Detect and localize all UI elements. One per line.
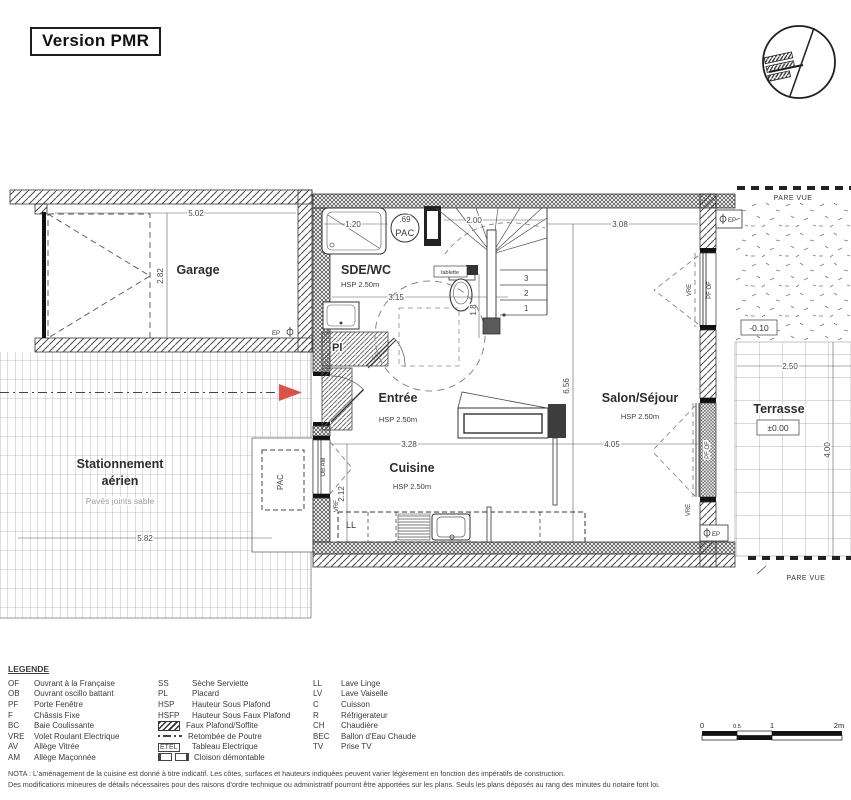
step-2: 2 xyxy=(524,289,529,298)
window-pf-of-top-label: PF OF xyxy=(707,281,713,299)
ep-box-bottom-right: EP xyxy=(700,525,728,541)
legend-label: Ballon d'Eau Chaude xyxy=(341,732,416,741)
dim-garage-height: 2.82 xyxy=(156,268,165,284)
salon-hsp: HSP 2.50m xyxy=(621,412,659,421)
dim-salon-top: 3.08 xyxy=(612,220,628,229)
dim-salon-width: 4.05 xyxy=(604,440,620,449)
legend-label: Tableau Electrique xyxy=(192,742,258,751)
terrasse-label: Terrasse xyxy=(753,402,804,416)
stair-rail xyxy=(487,230,496,318)
tablette-shelf: tablette xyxy=(434,266,467,277)
stair-newel xyxy=(483,318,500,334)
legend-abbr: AV xyxy=(8,742,34,751)
sdewc-hsp: HSP 2.50m xyxy=(341,280,379,289)
legend-abbr: R xyxy=(313,711,341,720)
legend-label: Ouvrant oscillo battant xyxy=(34,689,114,698)
window-ob-am-label: OB AM xyxy=(321,457,327,476)
scale-2m: 2m xyxy=(834,721,844,730)
dim-cuisine-height: 2.12 xyxy=(337,486,346,502)
stationnement-area: PAC Stationnement aérien Pavés joints sa… xyxy=(0,352,313,618)
dim-garage-width: 5.02 xyxy=(188,209,204,218)
legend-label: Retombée de Poutre xyxy=(188,732,262,741)
scale-05: 0.5 xyxy=(733,724,741,730)
legend-abbr: TV xyxy=(313,742,341,751)
legend-abbr: LV xyxy=(313,689,341,698)
entree-hsp: HSP 2.50m xyxy=(379,415,417,424)
legend-label: Hauteur Sous Plafond xyxy=(192,700,270,709)
legend-col1: OFOuvrant à la Française OBOuvrant oscil… xyxy=(8,678,119,763)
garage-door xyxy=(42,212,46,338)
dim-wc: 1.8 xyxy=(469,304,478,316)
legend-col3: LLLave Linge LVLave Vaiselle CCuisson RR… xyxy=(313,678,416,752)
scale-1: 1 xyxy=(770,721,774,730)
legend-label: Prise TV xyxy=(341,742,372,751)
level-path: -0.10 xyxy=(741,320,777,335)
page-title: Version PMR xyxy=(30,27,161,56)
legend-abbr: OB xyxy=(8,689,34,698)
sdewc-label: SDE/WC xyxy=(341,263,391,277)
stationnement-label-1: Stationnement xyxy=(77,457,165,471)
legend-label: Hauteur Sous Faux Plafond xyxy=(192,711,290,720)
nota-line-2: Des modifications mineures de détails né… xyxy=(8,779,848,790)
floor-plan-page: Version PMR xyxy=(0,0,851,800)
scale-0: 0 xyxy=(700,721,704,730)
legend-abbr: SS xyxy=(158,679,192,688)
legend-abbr: OF xyxy=(8,679,34,688)
legend-label: Sèche Serviette xyxy=(192,679,248,688)
legend-abbr: C xyxy=(313,700,341,709)
dim-5-82: 5.82 xyxy=(137,534,153,543)
pare-vue-top-label: PARE VUE xyxy=(774,195,813,202)
level-path-label: -0.10 xyxy=(749,323,769,333)
legend-label: Ouvrant à la Française xyxy=(34,679,115,688)
garage: 5.02 2.82 Garage EP xyxy=(10,190,312,352)
step-1: 1 xyxy=(524,304,529,313)
stationnement-label-2: aérien xyxy=(102,474,139,488)
legend-abbr: F xyxy=(8,711,34,720)
window-pf-of-bottom-label: PF OF xyxy=(705,441,711,459)
dim-terrasse-height: 4.00 xyxy=(823,442,832,458)
window-vre-bottom-label: VRE xyxy=(686,504,692,516)
legend-abbr: PL xyxy=(158,689,192,698)
legend-label: Cloison démontable xyxy=(194,753,265,762)
legend-abbr: HSFP xyxy=(158,711,192,720)
cuisine-label: Cuisine xyxy=(389,461,434,475)
ep-bottom-right-label: EP xyxy=(712,532,720,538)
north-arrow-icon xyxy=(757,20,841,104)
stationnement-surface: Pavés joints sable xyxy=(86,496,155,506)
legend-abbr: VRE xyxy=(8,732,34,741)
dim-sdewc-width: 3.15 xyxy=(388,293,404,302)
legend-label: Lave Linge xyxy=(341,679,380,688)
dim-stairs: 2.00 xyxy=(466,216,482,225)
cuisine-hsp: HSP 2.50m xyxy=(393,482,431,491)
legend-label: Placard xyxy=(192,689,219,698)
towel-unit xyxy=(424,206,441,246)
legend-abbr: PF xyxy=(8,700,34,709)
legend-abbr: HSP xyxy=(158,700,192,709)
level-terrasse: ±0.00 xyxy=(757,420,799,435)
step-3: 3 xyxy=(524,274,529,283)
window-vre-top-label: VRE xyxy=(687,284,693,296)
partition-wall xyxy=(553,438,557,505)
faux-plafond-swatch xyxy=(158,721,180,731)
legend-heading: LEGENDE xyxy=(8,664,848,674)
washbasin xyxy=(323,302,359,329)
legend-label: Allège Maçonnée xyxy=(34,753,96,762)
terrasse-area: PARE VUE -0.10 Terrasse ±0.00 2.50 4.00 … xyxy=(735,188,851,582)
pac-exterior-label: PAC xyxy=(276,474,285,490)
retombee-poutre-line xyxy=(158,735,182,737)
pac-niche xyxy=(252,438,313,552)
legend-abbr: AM xyxy=(8,753,34,762)
cloison-demontable xyxy=(487,507,491,542)
dim-terrasse-width: 2.50 xyxy=(782,362,798,371)
legend-abbr: CH xyxy=(313,721,341,730)
garage-ep-label: EP xyxy=(272,331,280,337)
legend-abbr: BEC xyxy=(313,732,341,741)
placard-label: Pl xyxy=(332,342,342,354)
dim-shower: 1.20 xyxy=(345,220,361,229)
legend-abbr: ETEL xyxy=(158,743,180,752)
legend-label: Faux Plafond/Soffite xyxy=(186,721,258,730)
legend-label: Porte Fenêtre xyxy=(34,700,83,709)
nota-text: NOTA : L'aménagement de la cuisine est d… xyxy=(8,768,848,790)
plan-drawing: PAC Stationnement aérien Pavés joints sa… xyxy=(0,170,851,630)
level-terrasse-label: ±0.00 xyxy=(767,423,788,433)
pare-vue-bottom-label: PARE VUE xyxy=(787,575,826,582)
shower xyxy=(322,208,386,254)
legend-col2: SSSèche Serviette PLPlacard HSPHauteur S… xyxy=(158,678,290,763)
salon-label: Salon/Séjour xyxy=(602,391,679,405)
legend-abbr: BC xyxy=(8,721,34,730)
ep-top-right-label: EP xyxy=(728,218,736,224)
entree-label: Entrée xyxy=(379,391,418,405)
legend-label: Châssis Fixe xyxy=(34,711,80,720)
garage-label: Garage xyxy=(176,263,219,277)
legend-label: Chaudière xyxy=(341,721,378,730)
legend-label: Réfrigerateur xyxy=(341,711,388,720)
pac-cylinder: .69 PAC xyxy=(391,214,419,242)
lave-linge-label: LL xyxy=(346,520,356,530)
cloison-demontable-symbol xyxy=(158,753,189,761)
dim-cuisine-width: 3.28 xyxy=(401,440,417,449)
legend-label: Lave Vaiselle xyxy=(341,689,388,698)
pac-label: PAC xyxy=(395,228,414,238)
legend-label: Cuisson xyxy=(341,700,370,709)
legend-abbr: LL xyxy=(313,679,341,688)
nota-line-1: NOTA : L'aménagement de la cuisine est d… xyxy=(8,768,848,779)
legend-label: Allège Vitrée xyxy=(34,742,79,751)
scale-bar: 0 0.5 1 2m xyxy=(698,720,848,748)
legend: LEGENDE OFOuvrant à la Française OBOuvra… xyxy=(8,664,848,677)
dim-pac: .69 xyxy=(399,215,411,224)
tablette-label: tablette xyxy=(441,270,459,276)
dim-salon-height: 6.56 xyxy=(562,378,571,394)
legend-label: Volet Roulant Electrique xyxy=(34,732,119,741)
legend-label: Baie Coulissante xyxy=(34,721,94,730)
